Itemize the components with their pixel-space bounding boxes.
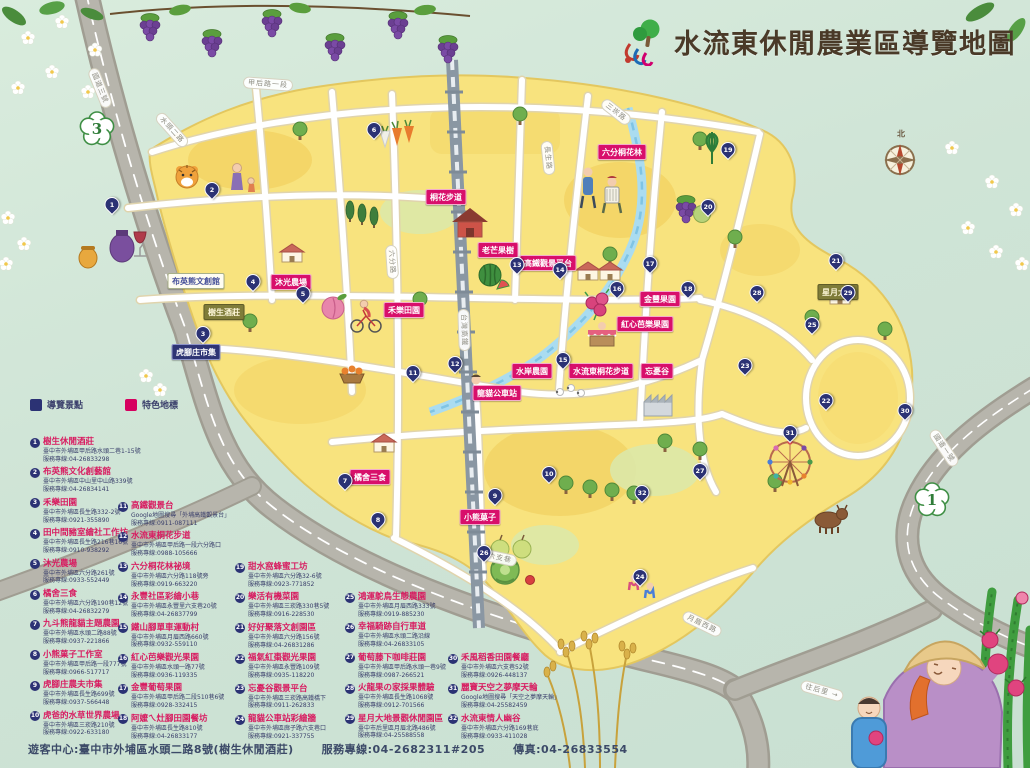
- visitor-center-address: 遊客中心:臺中市外埔區水頭二路8號(樹生休閒酒莊): [28, 741, 294, 757]
- map-artwork: [0, 0, 1030, 768]
- map-poster: 國道三號甲后路一段水頭二路六分路長生路三崁路台灣高鐵六支巷月眉西路往后里 →國道…: [0, 0, 1030, 768]
- persimmon-basket-icon: [340, 366, 364, 384]
- vine-and-grapes-decoration: [110, 1, 470, 63]
- service-hotline: 服務專線:04-2682311#205: [322, 741, 486, 757]
- compass-rose: [884, 144, 916, 176]
- compass-north-label: 北: [897, 129, 905, 140]
- tiger-icon: [176, 165, 198, 188]
- area-logo: [620, 16, 666, 66]
- page-title: 水流東休閒農業區導覽地圖: [674, 22, 1016, 61]
- honey-pot-icon: [79, 246, 97, 268]
- winery-icon: [110, 230, 146, 262]
- map-title-block: 水流東休閒農業區導覽地圖: [620, 16, 1016, 66]
- fax-number: 傳真:04-26833554: [513, 741, 628, 757]
- visitor-info-bar: 遊客中心:臺中市外埔區水頭二路8號(樹生休閒酒莊) 服務專線:04-268231…: [28, 741, 628, 757]
